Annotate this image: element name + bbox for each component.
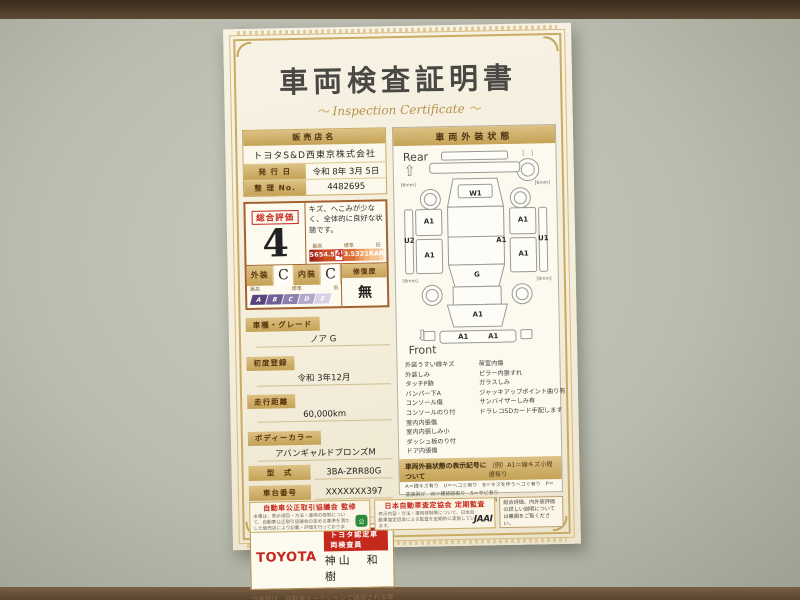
certificate-content: 車両検査証明書 Inspection Certificate 販売店名 トヨタS…	[240, 40, 563, 533]
exterior-condition-panel: 車両外装状態 Rear ⇧ ⇩ Front	[392, 124, 563, 495]
detail-row-first-registration: 初度登録 令和 3年12月	[246, 348, 391, 386]
fair-trade-council-box: 自動車公正取引協議会 監修 本書は、表示項目・方法・運用の体制について、自動車公…	[249, 500, 371, 533]
body-color-value: アバンギャルドブロンズM	[258, 443, 393, 462]
car-top-view: [ ] W1 A1 A1 U2 A1 A1 A1 U1 G A1 A1	[400, 145, 554, 360]
score-scale-cell: 3.5	[344, 249, 355, 261]
grade-scale-labels: 最高 標準 低	[247, 284, 342, 293]
symbols-header-bar: 車両外装状態の表示記号について （例）A1＝線キズ小程度有り	[400, 456, 562, 482]
interior-grade-label: 内装	[294, 264, 320, 284]
certificate-title: 車両検査証明書	[241, 54, 556, 102]
tire-tread-label: 6mm	[536, 277, 551, 282]
rating-comment: キズ、へこみが少なく、全体的に良好な状態です。	[308, 203, 383, 236]
exterior-grade-label: 外装	[247, 265, 273, 285]
model-value: ノア G	[256, 329, 391, 348]
jaai-logo: JAAI	[474, 514, 493, 524]
marker-left-rocker: U2	[404, 237, 415, 245]
marker-windshield: G	[474, 271, 480, 279]
certificate-paper: 車両検査証明書 Inspection Certificate 販売店名 トヨタS…	[223, 23, 581, 551]
photo-scene: 車両検査証明書 Inspection Certificate 販売店名 トヨタS…	[0, 0, 800, 600]
score-scale-cell: 4.5	[323, 249, 334, 261]
grade-area: 外装 C 内装 C 最高 標準 低	[247, 264, 342, 308]
grade-scale-cell: A	[250, 294, 268, 304]
fair-trade-council-logo-icon: 公	[355, 515, 367, 527]
inspector-name: 神山 和樹	[324, 552, 389, 585]
mileage-label: 走行距離	[247, 394, 295, 409]
first-registration-value: 令和 3年12月	[257, 368, 392, 387]
grade-scale-bar: A B C D E	[251, 293, 332, 305]
certificate-footer: 自動車公正取引協議会 監修 本書は、表示項目・方法・運用の体制について、自動車公…	[249, 496, 564, 533]
model-code-value: 3BA-ZRR80G	[314, 466, 393, 480]
marker-front-lower-right: A1	[488, 332, 498, 340]
marker-back-door: W1	[469, 189, 482, 197]
model-code-label: 型 式	[248, 465, 310, 481]
score-scale-cell: RA	[369, 248, 379, 260]
tire-tread-label: 6mm	[401, 183, 416, 188]
issue-date-value: 令和 8年 3月 5日	[306, 163, 387, 179]
overall-score-cell: 総合評価 4	[245, 203, 306, 265]
chassis-number-label: 車台番号	[249, 485, 311, 501]
left-column: 販売店名 トヨタS&D西東京株式会社 発 行 日 令和 8年 3月 5日 整 理…	[242, 127, 393, 498]
background-bottom-band	[0, 587, 800, 600]
inspector-info: トヨタ認定車両検査員 神山 和樹	[324, 528, 389, 585]
scale-mid-label: 標準	[292, 285, 302, 292]
rating-bottom-row: 外装 C 内装 C 最高 標準 低	[247, 263, 388, 308]
grade-scale-cell: E	[314, 293, 332, 303]
score-scale-bar: S 6 5 4.5 4 3.5 3 2 1	[309, 248, 384, 261]
marker-front-lower-left: A1	[458, 333, 468, 341]
detail-row-chassis-number: 車台番号 XXXXXXX397	[249, 483, 394, 501]
exterior-grade-value: C	[273, 265, 295, 285]
chassis-number-value: XXXXXXX397	[315, 486, 394, 500]
rating-top-row: 総合評価 4 キズ、へこみが少なく、全体的に良好な状態です。 最高 標準 低	[245, 201, 387, 265]
symbols-example: （例）A1＝線キズ小程度有り	[489, 459, 557, 478]
fair-trade-council-body: 本書は、表示項目・方法・運用の体制について、自動車公正取引協議会の定める基準を満…	[253, 513, 366, 533]
legend-right-column: 荷室内傷 ピラー内張すれ ガラスしみ ジャッキアップポイント曲り有 サンバイザー…	[479, 358, 555, 455]
overall-score-value: 4	[246, 224, 306, 264]
jaai-box: 日本自動車査定協会 定期監査 表示内容・方法・運用体制等について、日本自動車査定…	[374, 497, 496, 530]
issue-date-label: 発 行 日	[244, 164, 306, 180]
mileage-value: 60,000km	[257, 406, 392, 423]
grade-row: 外装 C 内装 C	[247, 264, 342, 286]
marker-right-rocker: U1	[538, 234, 549, 242]
symbols-title: 車両外装状態の表示記号について	[405, 459, 489, 481]
vehicle-details: 車種・グレード ノア G 初度登録 令和 3年12月 走行距離 60,000km	[245, 307, 393, 520]
scale-high-label: 最高	[250, 285, 260, 292]
model-label: 車種・グレード	[246, 317, 320, 332]
marker-right-front-door: A1	[496, 236, 506, 244]
detail-row-body-color: ボディーカラー アバンギャルドブロンズM	[248, 423, 393, 461]
marker-right-quarter: A1	[518, 216, 528, 224]
serial-number-row: 整 理 No. 4482695	[244, 177, 387, 196]
legend-left-column: 外装うすい線キズ 外装しみ タッチP跡 バンパー下A コンソール傷 コンソールの…	[405, 360, 477, 457]
car-diagram: Rear ⇧ ⇩ Front	[394, 143, 560, 360]
spare-tire-bracket: [ ]	[522, 148, 533, 157]
back-side-note: 総合評価、内外装評価の詳しい説明については裏面をご覧ください。	[499, 496, 564, 528]
legend-item: ドラレコSDカード手配します	[480, 406, 554, 417]
rating-comment-area: キズ、へこみが少なく、全体的に良好な状態です。 最高 標準 低 S	[305, 201, 387, 263]
legend-item: ドア内張傷	[407, 446, 477, 457]
certificate-columns: 販売店名 トヨタS&D西東京株式会社 発 行 日 令和 8年 3月 5日 整 理…	[242, 124, 563, 498]
scale-low-label: 低	[333, 284, 338, 291]
score-scale-cell-selected: 4	[335, 249, 344, 261]
repair-history-cell: 修復歴 無	[341, 263, 388, 306]
serial-number-value: 4482695	[306, 180, 387, 194]
dealer-box: 販売店名 トヨタS&D西東京株式会社 発 行 日 令和 8年 3月 5日 整 理…	[242, 127, 388, 197]
body-color-label: ボディーカラー	[248, 430, 321, 445]
repair-history-label: 修復歴	[342, 263, 387, 278]
score-scale-cell: R	[379, 248, 384, 260]
marker-left-quarter: A1	[424, 217, 434, 225]
first-registration-label: 初度登録	[246, 356, 294, 371]
marker-right-door: A1	[518, 250, 528, 258]
overall-rating-box: 総合評価 4 キズ、へこみが少なく、全体的に良好な状態です。 最高 標準 低	[243, 199, 389, 310]
serial-number-label: 整 理 No.	[244, 180, 306, 196]
detail-row-model: 車種・グレード ノア G	[245, 310, 390, 348]
certificate-subtitle: Inspection Certificate	[241, 98, 555, 121]
detail-row-model-code: 型 式 3BA-ZRR80G	[248, 463, 393, 481]
detail-row-mileage: 走行距離 60,000km	[247, 387, 392, 423]
background-top-band	[0, 0, 800, 19]
inspector-box: TOYOTA トヨタ認定車両検査員 神山 和樹	[250, 523, 396, 590]
condition-legend: 外装うすい線キズ 外装しみ タッチP跡 バンパー下A コンソール傷 コンソールの…	[398, 357, 561, 459]
toyota-logo: TOYOTA	[256, 549, 317, 565]
tire-tread-label: 6mm	[402, 279, 417, 284]
repair-history-value: 無	[342, 277, 388, 306]
tire-tread-label: 6mm	[535, 181, 550, 186]
marker-front-bumper: A1	[473, 310, 483, 318]
marker-left-door: A1	[424, 251, 434, 259]
interior-grade-value: C	[320, 264, 342, 284]
car-outline-drawing	[400, 145, 554, 360]
